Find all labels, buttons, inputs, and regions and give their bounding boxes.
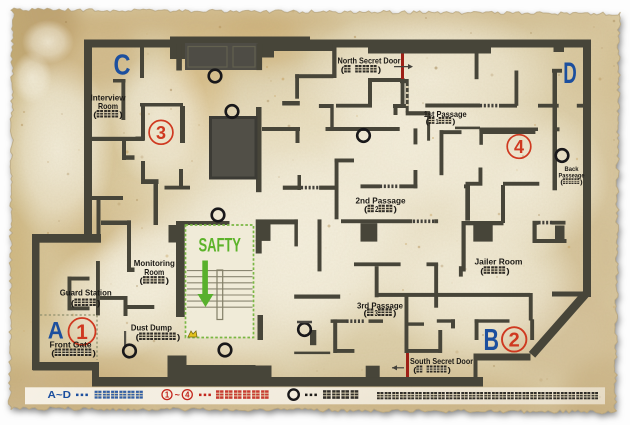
svg-text:Front Gate: Front Gate [50, 341, 92, 350]
svg-text:): ) [580, 179, 583, 186]
svg-text:1: 1 [165, 390, 170, 399]
svg-text:2: 2 [509, 330, 520, 352]
svg-text:(: ( [341, 66, 345, 75]
svg-text:(: ( [71, 299, 75, 308]
svg-text:D: D [563, 57, 577, 90]
svg-text:4: 4 [185, 390, 190, 399]
svg-text:Room: Room [98, 102, 118, 111]
svg-text:Monitoring: Monitoring [134, 259, 175, 268]
svg-text:(: ( [140, 277, 144, 286]
svg-text:C: C [114, 50, 131, 82]
svg-text:(: ( [51, 349, 55, 358]
svg-text:(: ( [364, 309, 368, 318]
svg-text:(: ( [136, 333, 140, 342]
svg-text:A~D: A~D [48, 390, 72, 401]
svg-text:): ) [378, 66, 382, 75]
svg-text:): ) [177, 333, 181, 342]
svg-text:Jailer Room: Jailer Room [475, 258, 523, 267]
svg-text:): ) [92, 349, 96, 358]
svg-text:~: ~ [175, 390, 180, 400]
svg-text:North Secret Door: North Secret Door [338, 57, 402, 66]
svg-text:3: 3 [156, 123, 166, 143]
svg-text:Room: Room [144, 268, 164, 277]
svg-text:): ) [506, 267, 510, 276]
svg-text:): ) [394, 205, 398, 214]
svg-text:SAFTY: SAFTY [198, 235, 241, 257]
svg-text:): ) [393, 309, 397, 318]
svg-text:4: 4 [514, 137, 524, 157]
svg-text:Guard Station: Guard Station [60, 289, 112, 298]
svg-text:South Secret Door: South Secret Door [410, 357, 474, 366]
svg-text:(: ( [364, 205, 368, 214]
svg-text:1: 1 [436, 117, 439, 126]
svg-text:2nd Passage: 2nd Passage [356, 197, 406, 206]
svg-text:2: 2 [375, 205, 379, 214]
svg-text:(: ( [93, 111, 97, 120]
svg-text:(: ( [480, 267, 484, 276]
svg-text:B: B [483, 322, 499, 357]
svg-text:): ) [119, 111, 123, 120]
svg-text:3: 3 [375, 309, 379, 318]
svg-text:): ) [97, 299, 101, 308]
svg-text:): ) [166, 277, 170, 286]
svg-text:Dust Dump: Dust Dump [131, 324, 172, 333]
